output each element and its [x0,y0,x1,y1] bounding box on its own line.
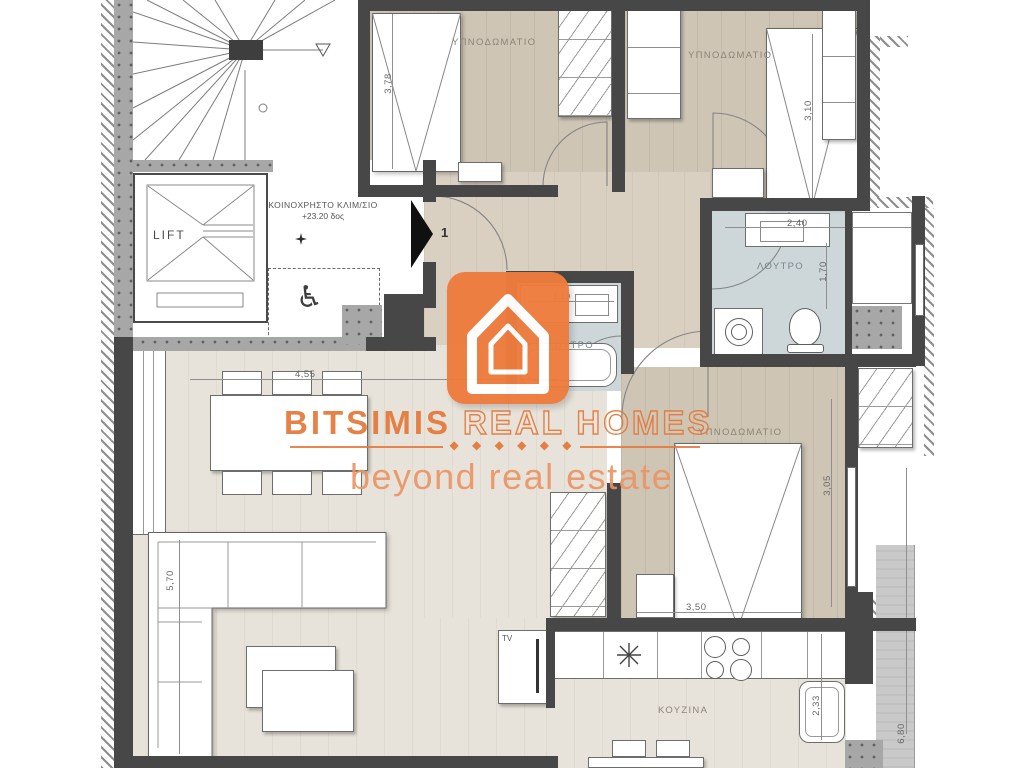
tv-screen [536,639,539,693]
tv-label: TV [502,634,512,643]
stove-burner [704,636,726,658]
lift-shaft [133,173,268,323]
wall-living-top [366,337,436,351]
brand-wordmark: BITSIMISREAL HOMES [284,404,712,442]
staircase [133,0,358,160]
wall-bedroom-divider [612,0,625,192]
nightstand [712,168,764,198]
window-bath [915,244,924,316]
room-label-bedroom-1: ΥΠΝΟΔΩΜΑΤΙΟ [452,37,536,48]
wheelchair-icon: ♿ [296,280,323,315]
brand-name-primary: BITSIMIS [284,404,451,441]
dim-sofa-length: 5,70 [165,570,176,591]
dim-bedroom1-width: 3,78 [383,73,394,94]
brand-divider-left [290,446,443,448]
floor-plan: LIFT ΚΟΙΝΟΧΡΗΣΤΟ ΚΛΙΜ/ΣΙΟ +23.20 δος ♿ 1 [0,0,1024,768]
dim-living-width: 4,55 [295,369,316,380]
wall-bath-left [700,198,712,366]
dining-chair [272,471,312,495]
kitchen-counter [554,631,848,679]
wall-kitchen-right [845,592,873,684]
wall-entry-top [423,160,436,202]
dim-kitchen-depth: 2,33 [811,695,822,716]
wall-bedroom2-right [857,0,870,211]
closet [822,10,856,140]
wall-bath-bottom [700,354,916,367]
wall-left-lower [114,337,133,768]
brand-name-secondary: REAL HOMES [463,404,712,441]
common-stair-caption: ΚΟΙΝΟΧΡΗΣΤΟ ΚΛΙΜ/ΣΙΟ +23.20 δος [258,200,388,221]
wardrobe [858,368,913,448]
dim-bathroom-width: 2,40 [787,218,808,229]
dim-bedroom3-depth: 3,05 [822,475,833,496]
lift-label: LIFT [151,228,188,242]
wardrobe [550,492,606,617]
coffee-table [262,670,354,732]
dining-chair [222,471,262,495]
common-stair-line2: +23.20 δος [258,211,388,221]
dining-chair [322,371,362,395]
stair-newel [229,40,263,60]
boundary-hatch-right [924,208,934,456]
window-living-left [132,345,166,535]
column-bath [852,306,902,349]
brand-diamonds: ◆ ◆ ◆ ◆ ◆ ◆ [448,438,578,452]
boundary-hatch-left [101,0,114,768]
wall-bedroom3-left [607,483,621,630]
dim-bedroom3-width: 3,50 [686,602,707,613]
wall-common-bottom [114,337,366,351]
brand-tagline: beyond real estate [350,456,673,498]
wall-wc-right [621,271,634,374]
sink-icon [616,642,642,668]
wall-bottom-left [114,756,558,768]
entrance-door-leaf [411,200,433,268]
nightstand [458,162,502,182]
wall-under-stairs [133,160,273,172]
toilet [786,306,826,356]
washing-machine [714,308,763,356]
room-label-bathroom: ΛΟΥΤΡΟ [757,261,804,272]
wardrobe [558,1,612,117]
window-bedroom3 [847,467,856,587]
breakfast-table [588,757,704,768]
brand-divider-right [580,446,700,448]
stove-burner [730,659,752,681]
chair [656,740,690,757]
room-label-kitchen: ΚΟΥΖΙΝΑ [658,705,708,716]
stove-burner [706,661,724,679]
dim-bedroom2-width: 3,10 [803,100,814,121]
dining-chair [222,371,262,395]
lift-symbol [135,175,266,321]
wall-entry-corner [384,294,424,342]
column-balcony [845,740,883,768]
shower [852,212,912,304]
dim-bathroom-depth: 1,70 [818,261,829,282]
chair [612,740,646,757]
fridge [799,681,845,743]
closet [627,1,681,119]
stove-burner [732,638,750,656]
wall-concrete-left [114,0,133,337]
wall-bath-top [700,198,868,211]
brand-logo-house-icon [447,272,569,404]
wall-tv [546,618,555,708]
dim-balcony-length: 6,80 [896,723,907,744]
common-stair-line1: ΚΟΙΝΟΧΡΗΣΤΟ ΚΛΙΜ/ΣΙΟ [258,200,388,210]
wall-entry-bottom [423,262,436,308]
entrance-number: 1 [441,225,449,240]
room-label-bedroom-2: ΥΠΝΟΔΩΜΑΤΙΟ [688,50,772,61]
wall-bedroom1-left [358,0,370,197]
wall-bedroom1-bottom [358,185,558,197]
wall-bath-partition [845,211,852,356]
